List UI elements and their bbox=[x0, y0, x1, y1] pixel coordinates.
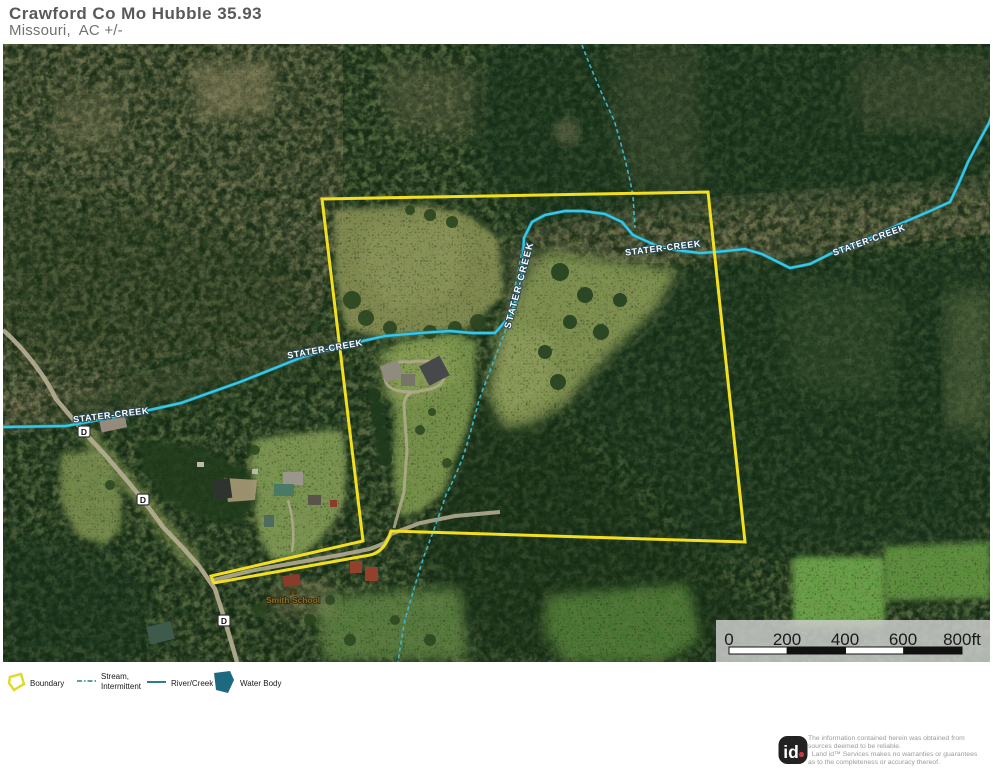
svg-text:Water Body: Water Body bbox=[240, 679, 282, 688]
svg-text:D: D bbox=[221, 616, 227, 626]
svg-text:Smith School: Smith School bbox=[266, 595, 320, 605]
svg-text:Stream,: Stream, bbox=[101, 672, 129, 681]
svg-text:D: D bbox=[140, 495, 146, 505]
svg-text:600: 600 bbox=[889, 630, 917, 649]
svg-text:The information contained here: The information contained herein was obt… bbox=[808, 735, 965, 742]
svg-text:D: D bbox=[81, 427, 87, 437]
svg-text:400: 400 bbox=[831, 630, 859, 649]
svg-text:200: 200 bbox=[773, 630, 801, 649]
svg-text:River/Creek: River/Creek bbox=[171, 679, 214, 688]
svg-text:sources deemed to be reliable.: sources deemed to be reliable. bbox=[808, 743, 901, 750]
svg-text:800ft: 800ft bbox=[943, 630, 981, 649]
svg-text:Land id™ Services makes no war: Land id™ Services makes no warranties or… bbox=[808, 751, 978, 758]
svg-text:0: 0 bbox=[724, 630, 733, 649]
svg-text:id: id bbox=[783, 742, 799, 762]
svg-text:as to the completeness or accu: as to the completeness or accuracy there… bbox=[808, 759, 940, 766]
svg-text:Intermittent: Intermittent bbox=[101, 682, 142, 691]
svg-text:Boundary: Boundary bbox=[30, 679, 64, 688]
